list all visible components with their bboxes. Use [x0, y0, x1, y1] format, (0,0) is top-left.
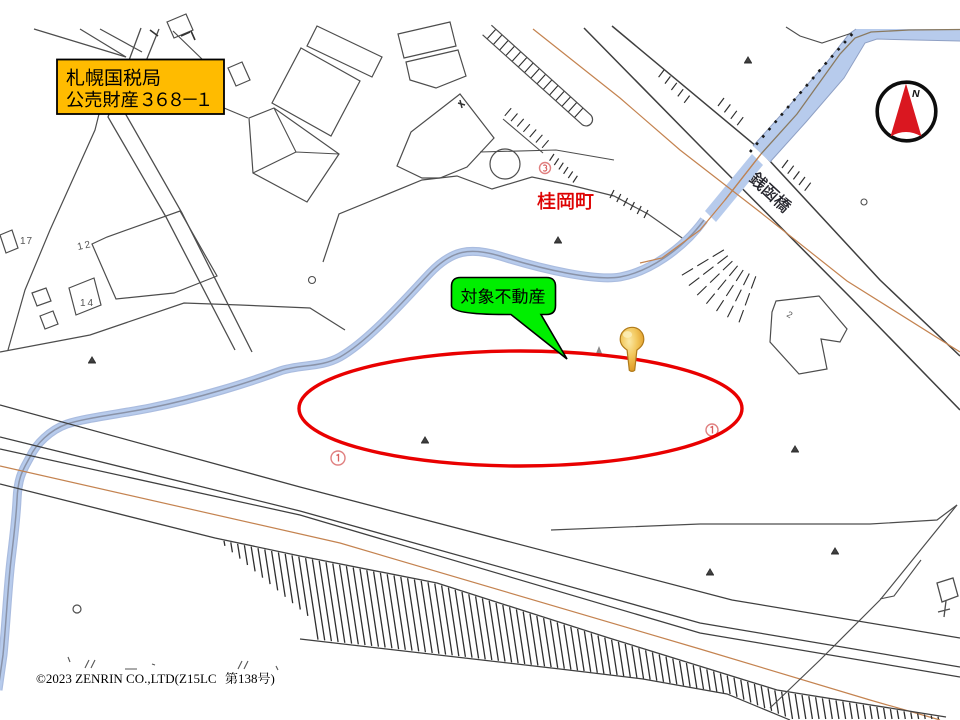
svg-text:14: 14: [80, 298, 95, 309]
svg-text:17: 17: [20, 236, 33, 247]
svg-text:138: 138: [238, 671, 258, 686]
svg-text:N: N: [912, 88, 920, 100]
svg-text:©2023 ZENRIN CO.,LTD(Z15LC: ©2023 ZENRIN CO.,LTD(Z15LC: [36, 671, 217, 686]
svg-text:): ): [271, 671, 275, 686]
